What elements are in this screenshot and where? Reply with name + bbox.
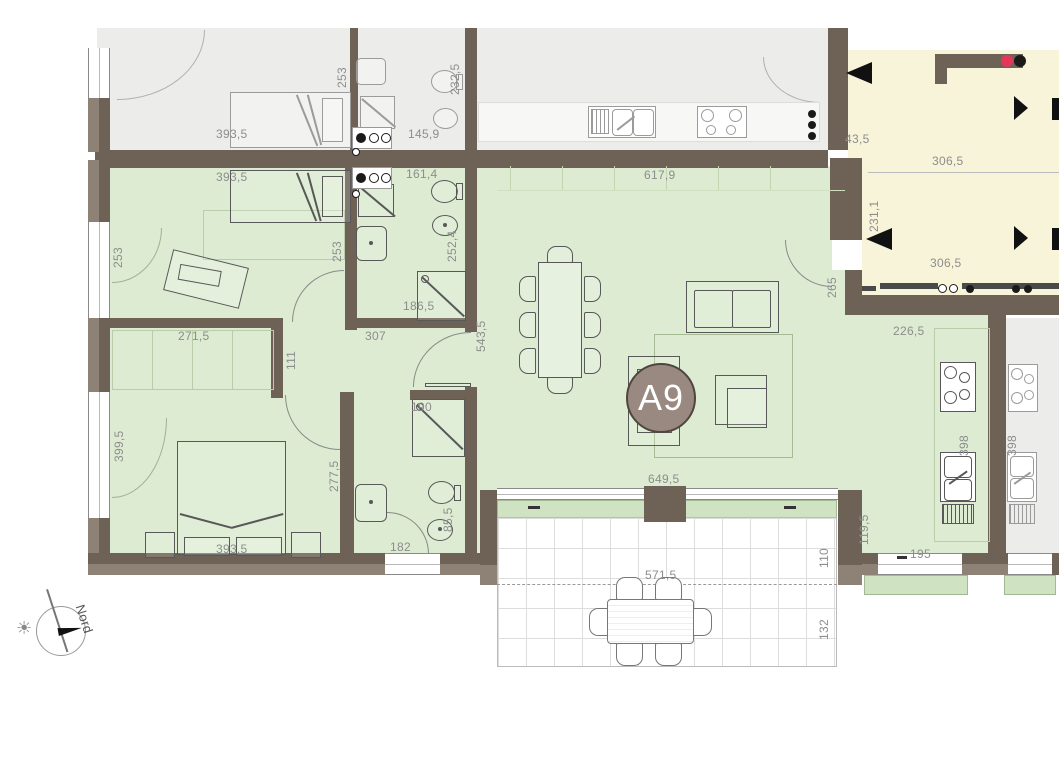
dining-chair xyxy=(519,276,536,302)
window-neighbor-right xyxy=(1008,553,1052,575)
toilet-bath1 xyxy=(431,180,458,203)
balcony-strip-kitchen xyxy=(864,575,968,595)
dim-stair-lower: 306,5 xyxy=(930,257,962,270)
dim-kitchen-counter: 398 xyxy=(958,435,971,456)
dim-neighbor-bath-width: 145,9 xyxy=(408,128,440,141)
dining-chair xyxy=(519,348,536,374)
electrical-outlets xyxy=(352,167,392,189)
electrical-outlets xyxy=(352,127,392,149)
balcony-strip-neighbor xyxy=(1004,575,1056,595)
dim-hall-wall: 271,5 xyxy=(178,330,210,343)
dim-stair-depth: 231,1 xyxy=(868,200,881,232)
terrace-chair xyxy=(616,643,643,666)
dim-bath1-depth: 252,4 xyxy=(446,230,459,262)
floor-plan: A9 ☀ Nord 393,5 145,9 617,9 43,5 306,5 3… xyxy=(0,0,1059,768)
cooktop-kitchen xyxy=(940,362,976,412)
dim-living-width: 617,9 xyxy=(644,169,676,182)
coffee-table xyxy=(727,388,767,428)
window-neighbor-left xyxy=(88,48,110,98)
window-bath2-door xyxy=(385,553,440,575)
dim-bath2-door: 182 xyxy=(390,541,411,554)
toilet-bath2 xyxy=(428,481,455,504)
dining-chair xyxy=(584,348,601,374)
dim-bath2-side: 85,5 xyxy=(442,507,455,532)
cooktop-neighbor-kitchen xyxy=(697,106,747,138)
dim-neighbor-counter: 398 xyxy=(1006,435,1019,456)
dim-hall-width: 307 xyxy=(365,330,386,343)
dim-bath2-width: 190 xyxy=(411,401,432,414)
wall-left-exterior xyxy=(99,160,110,222)
dim-bed3-window: 399,5 xyxy=(113,430,126,462)
wall-stairwell-bottom xyxy=(845,295,1059,315)
wall-bath2-right xyxy=(465,387,477,555)
dim-terrace-near: 110 xyxy=(818,548,831,568)
dim-stair-upper: 306,5 xyxy=(932,155,964,168)
pillow-bed1 xyxy=(322,176,343,217)
sink-kitchen xyxy=(940,452,976,502)
sink-neighbor-bath xyxy=(356,58,386,85)
dimension-line-stair xyxy=(868,172,1059,173)
door-hall-living-leaf xyxy=(425,383,471,387)
dim-kitchen-width: 226,5 xyxy=(893,325,925,338)
sun-icon: ☀ xyxy=(16,618,32,639)
dim-neighbor-bed-depth: 253 xyxy=(336,67,349,88)
dining-chair xyxy=(584,312,601,338)
dim-patio-door: 649,5 xyxy=(648,473,680,486)
nightstand-bed3 xyxy=(291,532,321,558)
dim-kitchen-window: 195 xyxy=(910,548,931,561)
dining-chair xyxy=(519,312,536,338)
dim-bed1-side-left: 253 xyxy=(112,247,125,268)
dining-table xyxy=(538,262,582,378)
window-bed3 xyxy=(88,392,110,518)
terrace-chair xyxy=(655,643,682,666)
dim-bed1-side-right: 253 xyxy=(331,241,344,262)
dim-dining-depth: 543,5 xyxy=(475,320,488,352)
dim-terrace-far: 132 xyxy=(818,619,831,640)
bidet-neighbor xyxy=(433,108,458,129)
dim-stair-gap: 43,5 xyxy=(845,133,870,146)
window-bed1 xyxy=(88,222,110,318)
terrace-chair xyxy=(616,577,643,600)
dim-hall-jog: 111 xyxy=(285,351,298,370)
cooktop-neighbor-right xyxy=(1008,364,1038,412)
stair-red-marker xyxy=(1001,55,1013,67)
dim-bed3-width: 393,5 xyxy=(216,543,248,556)
dining-chair xyxy=(547,246,573,263)
terrace-table xyxy=(607,599,694,644)
wall-bed1-south xyxy=(110,318,277,328)
dim-neighbor-bath-depth: 232,5 xyxy=(449,63,462,95)
sink-neighbor-kitchen xyxy=(588,106,656,138)
dim-kitchen-pass: 119,5 xyxy=(858,514,871,545)
compass: ☀ Nord xyxy=(10,595,120,685)
dim-bed3-wall: 277,5 xyxy=(328,460,341,492)
door-entry-threshold xyxy=(832,240,862,270)
wall-bed3-bath2 xyxy=(340,392,354,555)
dim-terrace-width: 571,5 xyxy=(645,569,677,582)
pillow-neighbor xyxy=(322,98,343,142)
stair-arrow-icon xyxy=(846,62,872,84)
dining-chair xyxy=(584,276,601,302)
nightstand-bed3 xyxy=(145,532,175,558)
dim-living-pass: 265 xyxy=(826,277,839,298)
unit-badge[interactable]: A9 xyxy=(626,363,696,433)
dim-bed1-width: 393,5 xyxy=(216,171,248,184)
dim-neighbor-bed-width: 393,5 xyxy=(216,128,248,141)
drainer-kitchen xyxy=(942,504,974,524)
dining-chair xyxy=(547,377,573,394)
dim-bath1-width: 161,4 xyxy=(406,168,438,181)
drainer-neighbor-right xyxy=(1009,504,1035,524)
window-mullion xyxy=(644,486,686,522)
sofa xyxy=(686,281,779,333)
stair-arrow-icon xyxy=(1014,96,1028,120)
sink-neighbor-right xyxy=(1007,452,1037,502)
wall-kitchen-east xyxy=(988,315,1006,555)
wall-bath1-living xyxy=(465,166,477,332)
stair-arrow-icon xyxy=(1014,226,1028,250)
dim-bath1-shower: 186,5 xyxy=(403,300,435,313)
